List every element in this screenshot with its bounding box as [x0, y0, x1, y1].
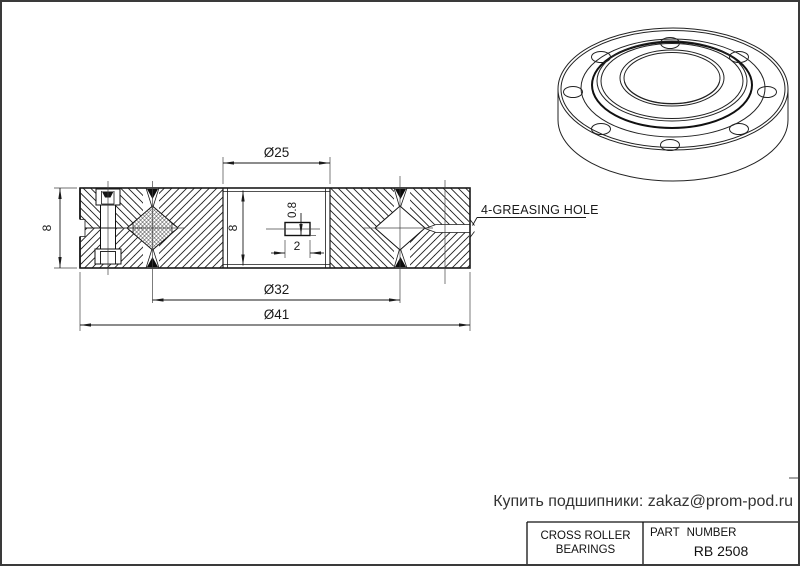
dimension-bore-diameter: Ø25: [223, 145, 330, 184]
part-number-label: PART NUMBER: [650, 527, 736, 539]
part-number-value: RB 2508: [694, 543, 749, 559]
dim-inner-width-label: 8: [226, 224, 240, 231]
drawing-sheet: Ø25 Ø32 Ø41 8 8 0.8: [0, 0, 800, 566]
mounting-holes: [564, 38, 777, 151]
dim-seal-depth-label: 0.8: [287, 202, 299, 218]
dim-outer-diameter-label: Ø41: [264, 307, 290, 322]
outer-ring-right-bottom: [410, 228, 470, 268]
greasing-hole-callout: 4-GREASING HOLE: [473, 203, 599, 226]
title-block-product-line2: BEARINGS: [556, 544, 616, 556]
dim-seal-width-label: 2: [294, 239, 301, 253]
title-block-product-line1: CROSS ROLLER: [540, 530, 630, 542]
dimension-outer-diameter: Ø41: [80, 272, 470, 331]
dimension-width: 8: [40, 188, 77, 268]
dim-bore-diameter-label: Ø25: [264, 145, 290, 160]
dimension-pitch-diameter: Ø32: [153, 282, 401, 300]
dim-pitch-diameter-label: Ø32: [264, 282, 290, 297]
contact-text: Купить подшипники: zakaz@prom-pod.ru: [493, 493, 793, 510]
dim-width-label: 8: [40, 224, 54, 231]
greasing-hole-label: 4-GREASING HOLE: [481, 203, 599, 217]
isometric-view: [558, 28, 788, 181]
title-block: CROSS ROLLER BEARINGS PART NUMBER RB 250…: [527, 522, 798, 564]
outer-ring-right-top: [410, 188, 470, 228]
